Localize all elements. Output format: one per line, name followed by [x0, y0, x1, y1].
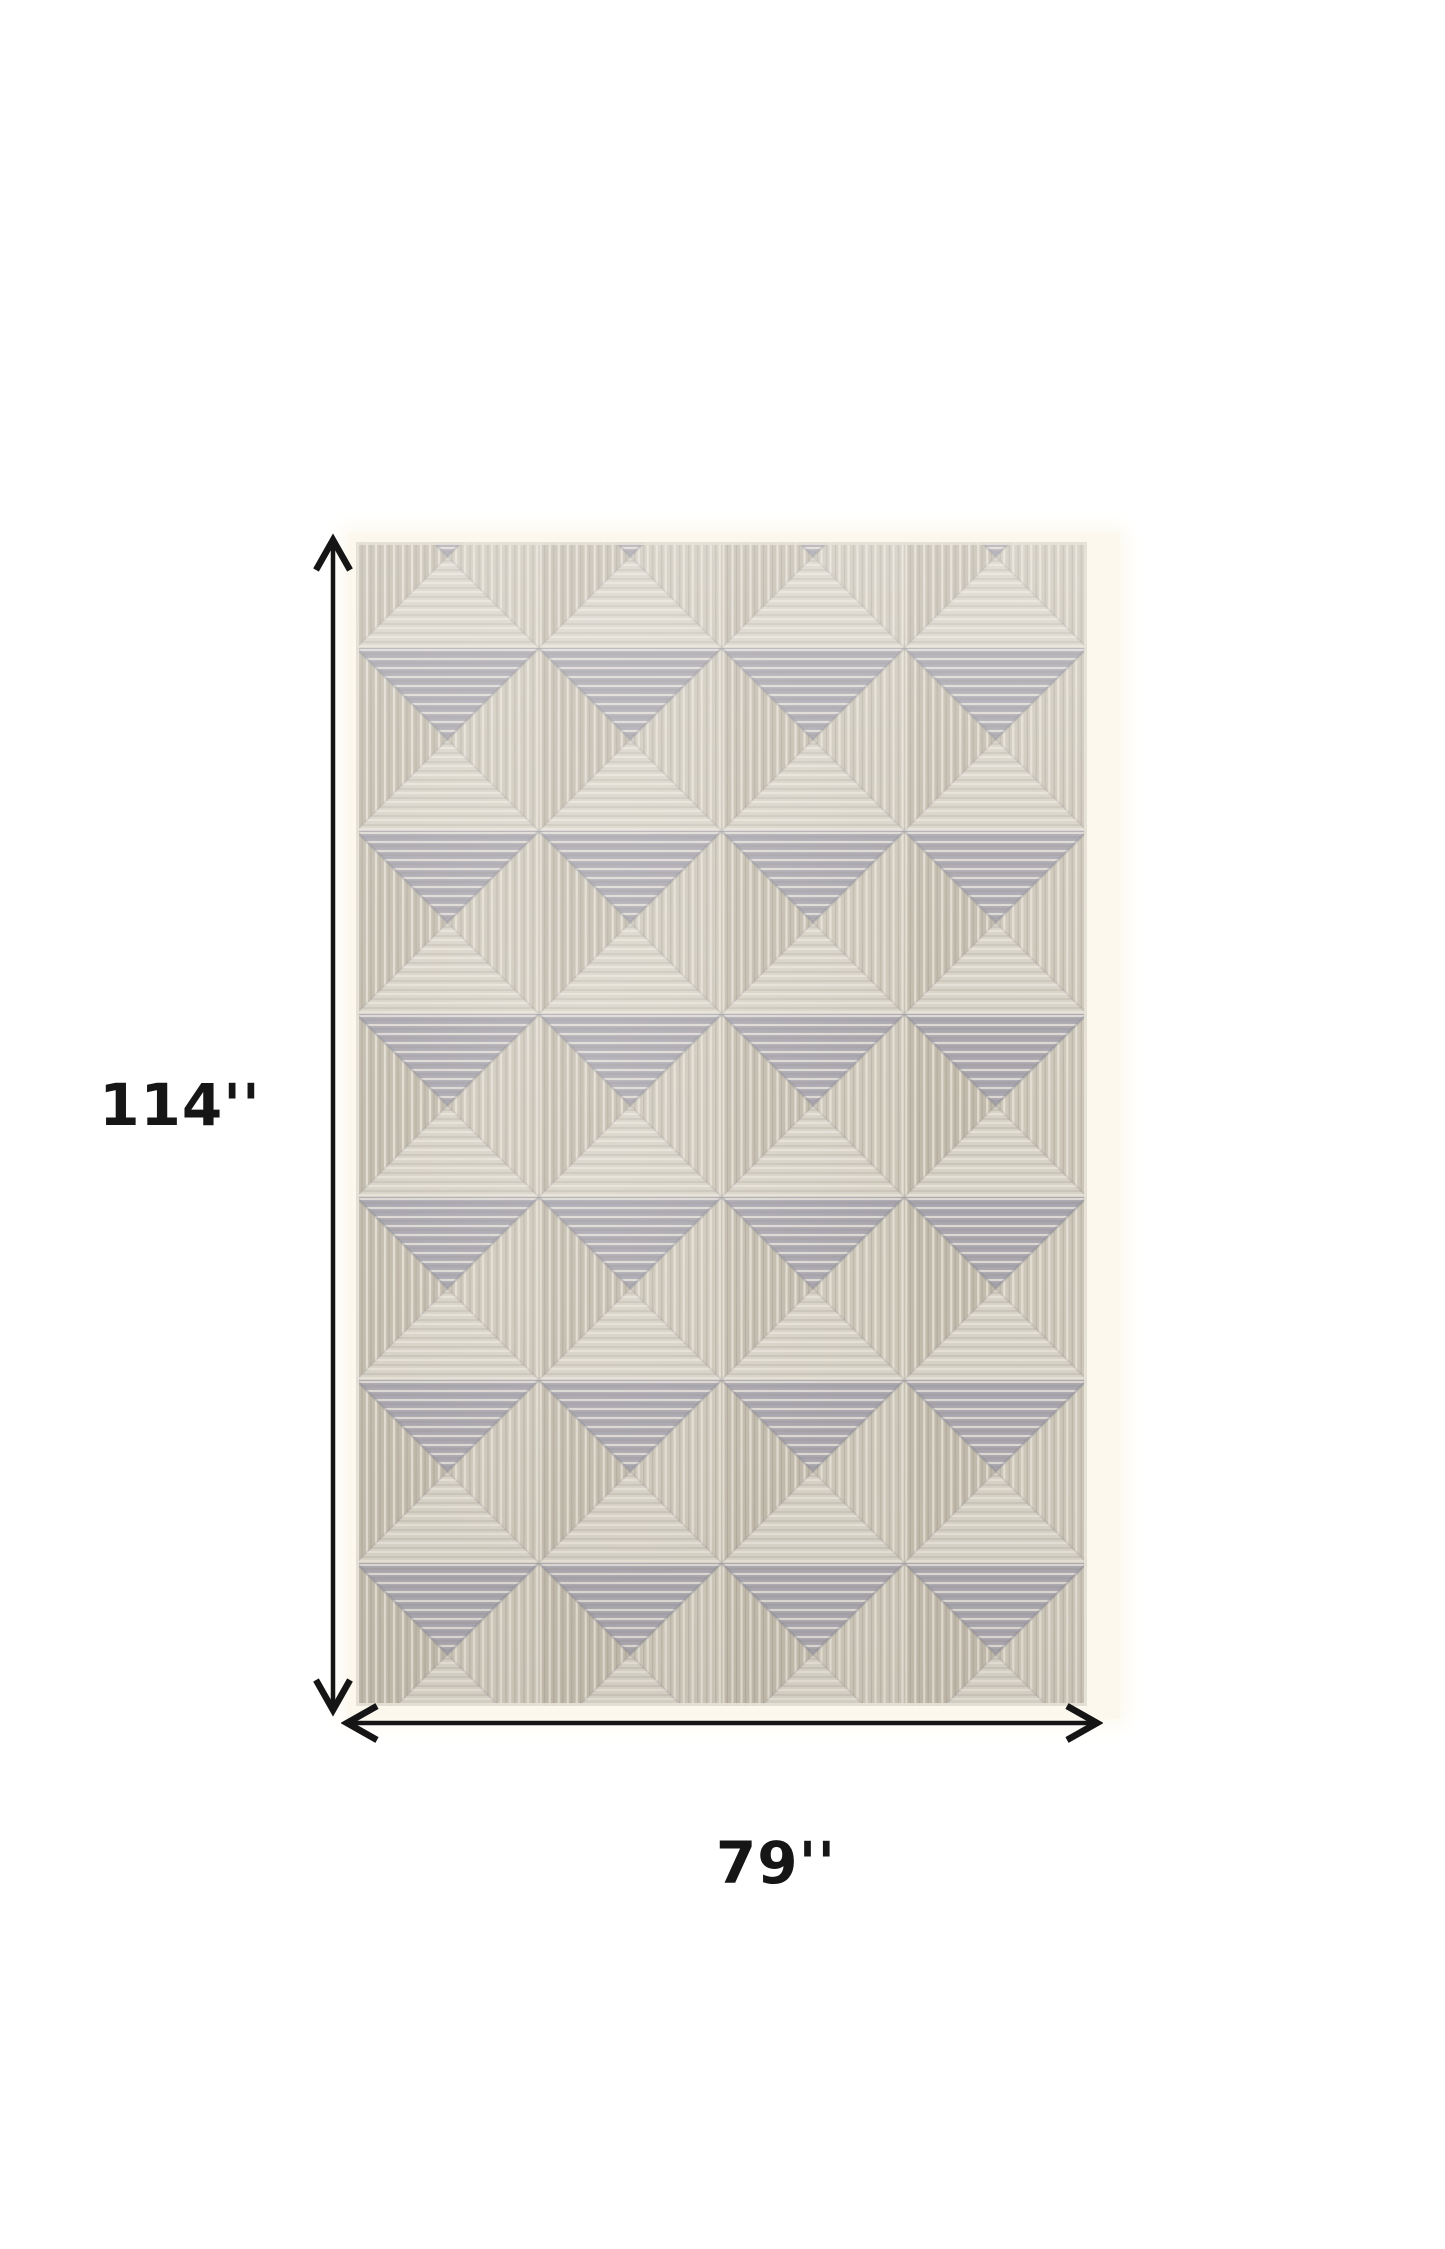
rug-image	[356, 542, 1087, 1706]
product-dimension-figure: 114'' 79''	[0, 0, 1445, 2249]
height-dimension-arrow-icon	[311, 532, 355, 1718]
width-dimension-arrow-icon	[341, 1701, 1103, 1745]
width-label: 79''	[691, 1832, 861, 1896]
height-label: 114''	[95, 1074, 265, 1138]
